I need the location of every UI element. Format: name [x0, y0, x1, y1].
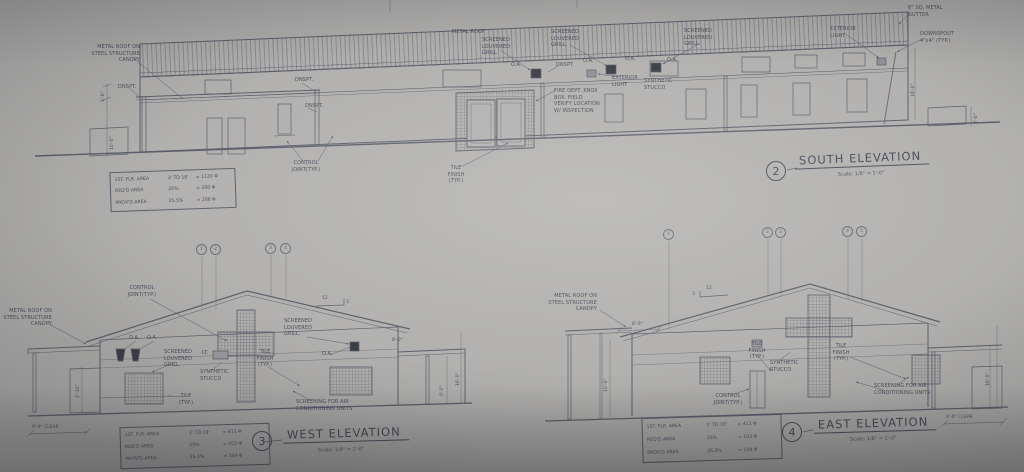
table-cell: 2' TO 10' — [189, 431, 223, 437]
table-cell: = 103 Φ — [223, 441, 265, 447]
label-exterior-light: EXTERIOR LIGHT — [830, 26, 860, 39]
table-row: PROV'D AREA 25.3% = 104 Φ — [125, 453, 265, 462]
label-oa: O.A. — [625, 56, 636, 63]
label-synthetic-stucco: SYNTHETIC STUCCO — [770, 360, 800, 373]
louvered-grill-icon — [350, 342, 359, 351]
table-row: REQ'D AREA 25% = 103 Φ — [647, 434, 777, 443]
label-dnspt: DNSPT. — [556, 62, 574, 69]
table-cell: 2' TO 10' — [168, 175, 196, 181]
table-row: 1ST. FLR. AREA 2' TO 10' = 411 Φ — [125, 429, 265, 438]
label-control-joint: CONTROL JOINT(TYP.) — [124, 285, 160, 298]
dim-10-0: 10'-0" — [604, 378, 609, 392]
table-cell: = 103 Φ — [738, 434, 777, 440]
table-cell: 25% — [189, 443, 223, 449]
south-area-table: 1ST. FLR. AREA 2' TO 10' = 1120 Φ REQ'D … — [109, 168, 236, 212]
exterior-light-icon — [877, 58, 886, 65]
label-oa: O.A. — [129, 335, 140, 342]
east-scale: Scale: 1/8" = 1'-0" — [850, 435, 896, 442]
label-metal-roof-canopy: METAL ROOF ON STEEL STRUCTURE CANOPY — [82, 44, 140, 64]
slope-rise: 12 — [706, 286, 712, 291]
label-metal-roof: METAL ROOF — [452, 29, 485, 36]
table-cell: PROV'D AREA — [125, 456, 190, 463]
dim-9-0-clear: 9'-0" CLEAR — [946, 415, 973, 420]
table-cell: 1ST. FLR. AREA — [125, 432, 190, 439]
dim-10-0: 10'-0" — [110, 136, 115, 150]
table-cell: = 411 Φ — [223, 429, 265, 435]
table-cell: 1ST. FLR. AREA — [647, 423, 707, 430]
table-cell: 25% — [707, 435, 738, 441]
label-synthetic-stucco: SYNTHETIC STUCCO — [644, 78, 674, 91]
label-dnspt: DNSPT. — [118, 84, 136, 91]
dim-3-0: 3'-0" — [974, 113, 979, 124]
table-cell: PROV'D AREA — [115, 199, 169, 206]
label-oa: O.A. — [147, 335, 158, 342]
table-cell: REQ'D AREA — [115, 188, 169, 195]
grid-bubble: 2 — [762, 227, 773, 238]
label-tile-finish: TILE FINISH (TYP.) — [746, 341, 768, 361]
dim-8-0: 8'-0" — [632, 322, 643, 327]
elevation-sheet-photo: METAL ROOF ON STEEL STRUCTURE CANOPY DNS… — [0, 0, 1024, 472]
oa-scupper-icon — [131, 349, 140, 361]
label-ac-screening: SCREENING FOR AIR CONDITIONING UNITS — [874, 383, 944, 396]
label-screened-grill: SCREENED LOUVERED GRILL. — [684, 28, 714, 48]
table-cell: = 280 Φ — [196, 185, 231, 191]
label-downspout: DOWNSPOUT 4"x4" (TYP.) — [920, 31, 962, 44]
label-oa: O.A. — [583, 58, 594, 65]
west-area-table: 1ST. FLR. AREA 2' TO 10' = 411 Φ REQ'D A… — [119, 423, 270, 469]
label-tile-finish: TILE FINISH (TYP.) — [830, 343, 852, 363]
label-tile-finish: TILE FINISH (TYP.) — [445, 165, 467, 185]
table-cell: 25.3% — [707, 448, 738, 454]
label-gutter: 6" SQ. METAL GUTTER — [908, 5, 950, 18]
grid-bubble: 3 — [265, 243, 276, 254]
table-cell: REQ'D AREA — [647, 436, 707, 443]
dim-5-0: 5'-0" — [440, 385, 445, 396]
grid-bubble: 1 — [196, 244, 207, 255]
dim-16-0: 16'-0" — [456, 372, 461, 386]
dim-2-10: 2'-10" — [76, 384, 81, 398]
label-tile-finish: TILE FINISH (TYP.) — [254, 349, 276, 369]
table-cell: 2' TO 10' — [706, 422, 737, 428]
table-row: 1ST. FLR. AREA 2' TO 10' = 1120 Φ — [115, 174, 231, 183]
dim-9-0-clear: 9'-0" CLEAR — [32, 425, 59, 430]
drawing-linework — [0, 0, 1024, 472]
east-detail-number: 4 — [782, 422, 802, 442]
dim-8-0: 8'-0" — [392, 338, 403, 343]
table-cell: = 286 Φ — [196, 197, 231, 203]
table-cell: = 1120 Φ — [196, 174, 231, 180]
dim-16-0: 16'-0" — [986, 372, 991, 386]
label-oa: O.A. — [511, 62, 522, 69]
exterior-light-icon — [587, 70, 596, 77]
label-dnspt: DNSPT. — [305, 103, 323, 110]
west-scale: Scale: 1/8" = 1'-0" — [318, 446, 364, 453]
label-ac-screening: SCREENING FOR AIR CONDITIONING UNITS — [296, 399, 366, 412]
slope-run: 3 — [346, 300, 349, 305]
table-cell: 25.3% — [190, 455, 224, 461]
east-elevation-linework — [545, 238, 1008, 432]
label-control-joint: CONTROL JOINT(TYP.) — [288, 160, 324, 173]
dim-16-0: 16'-0" — [911, 83, 916, 97]
label-tile-typ: TILE (TYP.) — [176, 393, 196, 406]
table-cell: = 104 Φ — [738, 447, 777, 453]
grid-bubble: 3 — [775, 227, 786, 238]
label-knox-box: FIRE DEPT. KNOX BOX. FIELD VERIFY LOCATI… — [554, 88, 600, 114]
table-cell: 1ST. FLR. AREA — [115, 176, 169, 183]
dim-1-6: 1'-6" — [101, 91, 106, 102]
table-cell: = 104 Φ — [223, 453, 265, 459]
grid-bubble: 4 — [842, 226, 853, 237]
louvered-grill-icon — [606, 65, 616, 74]
slope-rise: 12 — [322, 296, 328, 301]
west-elevation-linework — [27, 255, 472, 442]
label-oa: O.A. — [322, 351, 333, 358]
grid-bubble: 1 — [663, 229, 674, 240]
label-dnspt: DNSPT. — [295, 77, 313, 84]
label-screened-grill: SCREENED LOUVERED GRILL. — [284, 318, 314, 338]
table-row: 1ST. FLR. AREA 2' TO 10' = 411 Φ — [647, 421, 777, 430]
label-screened-grill: SCREENED LOUVERED GRILL. — [551, 29, 581, 49]
east-area-table: 1ST. FLR. AREA 2' TO 10' = 411 Φ REQ'D A… — [641, 414, 782, 463]
slope-run: 3 — [692, 292, 695, 297]
label-lt: LT. — [202, 350, 208, 357]
grid-bubble: 4 — [280, 243, 291, 254]
label-synthetic-stucco: SYNTHETIC STUCCO — [200, 369, 230, 382]
south-detail-number: 2 — [766, 161, 786, 181]
label-metal-roof-canopy: METAL ROOF ON STEEL STRUCTURE CANOPY — [0, 308, 52, 328]
table-row: REQ'D AREA 25% = 280 Φ — [115, 185, 231, 194]
label-exterior-light: EXTERIOR LIGHT — [612, 75, 642, 88]
table-row: REQ'D AREA 25% = 103 Φ — [125, 441, 265, 450]
grid-bubble: 5 — [856, 226, 867, 237]
table-cell: PROV'D AREA — [647, 449, 707, 456]
grid-bubble: 2 — [210, 244, 221, 255]
table-row: PROV'D AREA 25.3% = 104 Φ — [647, 447, 777, 456]
exterior-light-icon — [213, 351, 228, 359]
table-row: PROV'D AREA 25.5% = 286 Φ — [115, 197, 231, 206]
label-screened-grill: SCREENED LOUVERED GRILL. — [164, 349, 194, 369]
label-metal-roof-canopy: METAL ROOF ON STEEL STRUCTURE CANOPY — [543, 293, 597, 313]
table-cell: 25% — [168, 187, 196, 193]
label-control-joint: CONTROL JOINT(TYP.) — [710, 393, 746, 406]
label-screened-grill: SCREENED LOUVERED GRILL. — [482, 37, 512, 57]
table-cell: 25.5% — [169, 198, 197, 204]
louvered-grill-icon — [651, 63, 661, 72]
louvered-grill-icon — [531, 69, 541, 78]
table-cell: = 411 Φ — [738, 421, 777, 427]
east-title: EAST ELEVATION — [814, 414, 937, 433]
oa-scupper-icon — [116, 349, 125, 361]
label-oa: O.A. — [667, 57, 678, 64]
table-cell: REQ'D AREA — [125, 444, 190, 451]
